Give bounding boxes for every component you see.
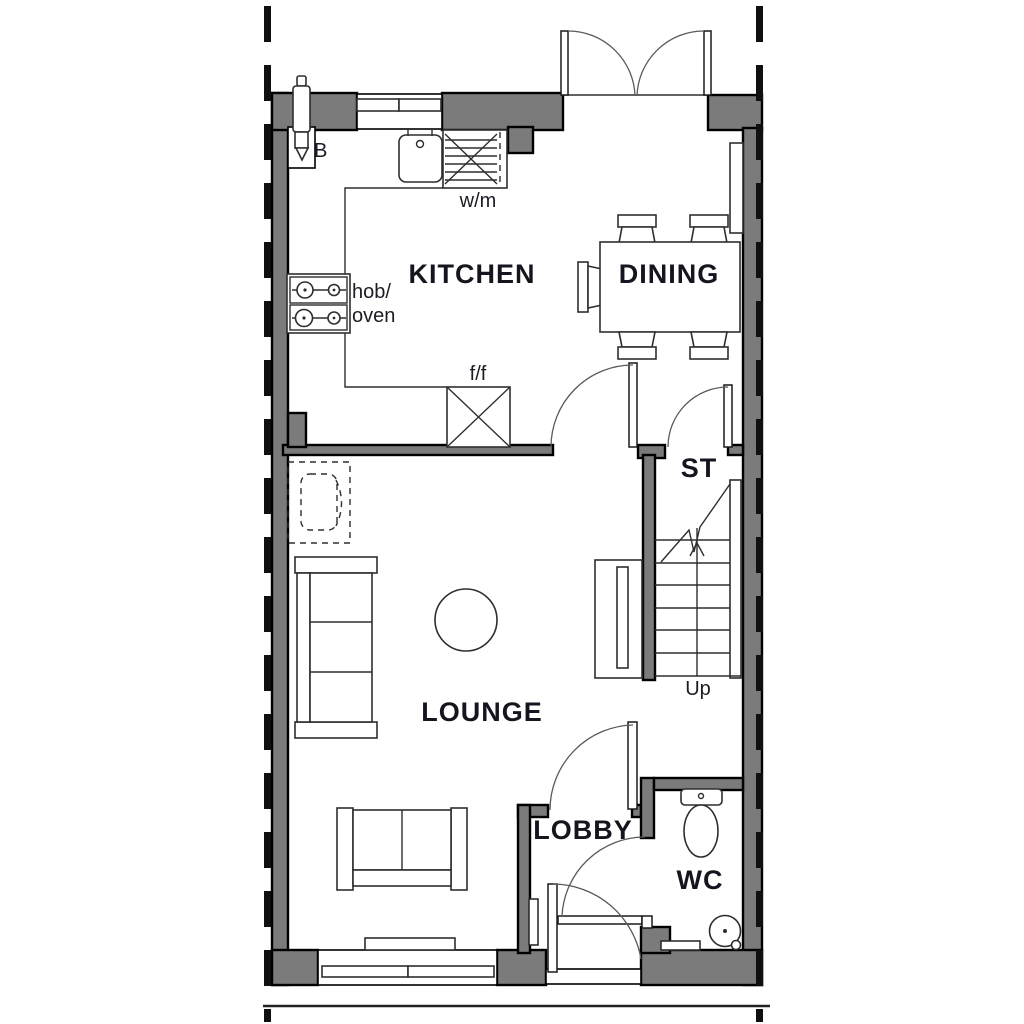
room-label-dining: DINING <box>619 259 720 289</box>
sofa-small <box>337 808 467 890</box>
basin <box>661 916 741 951</box>
wall-stairs-west <box>643 455 655 680</box>
hob-oven <box>287 274 350 333</box>
label-boiler: B <box>314 140 327 162</box>
label-washing-machine: w/m <box>459 190 497 212</box>
kitchen-window <box>357 94 442 129</box>
label-fridge-freezer: f/f <box>470 363 487 385</box>
radiator-lounge <box>365 938 455 950</box>
toilet <box>681 789 722 857</box>
dining-set <box>578 143 743 359</box>
stairs-stringer <box>730 480 741 678</box>
kitchen-door <box>551 363 637 447</box>
room-label-store: ST <box>681 453 718 483</box>
sink <box>399 130 442 182</box>
wall-top-a <box>272 93 357 130</box>
wall-bottom-c <box>641 950 762 985</box>
wc-shelf <box>661 941 700 950</box>
wall-left <box>272 93 288 985</box>
lounge-window <box>318 938 497 985</box>
lobby-door <box>550 722 637 810</box>
armchair-dashed <box>288 462 350 543</box>
coffee-table <box>435 589 497 651</box>
wc-door <box>558 837 652 928</box>
wall-west-pier <box>288 413 306 447</box>
french-door-left-leaf <box>561 31 568 95</box>
wall-pier-wm <box>508 127 533 153</box>
store-door <box>668 385 732 447</box>
floor-plan-drawing: KITCHEN DINING ST LOUNGE LOBBY WC B w/m … <box>0 0 1024 1024</box>
sofa-large <box>295 557 377 738</box>
wall-bottom-b <box>497 950 546 985</box>
stairs <box>655 480 741 678</box>
media-unit <box>595 560 642 678</box>
room-label-lobby: LOBBY <box>533 815 633 845</box>
label-hob-line2: oven <box>352 305 395 327</box>
french-door-right-leaf <box>704 31 711 95</box>
room-label-lounge: LOUNGE <box>421 697 543 727</box>
floor-plan-page: KITCHEN DINING ST LOUNGE LOBBY WC B w/m … <box>0 0 1024 1024</box>
front-door <box>546 884 641 984</box>
french-doors <box>561 31 711 96</box>
room-label-wc: WC <box>677 865 724 895</box>
radiator-dining <box>730 143 743 233</box>
wall-bottom-a <box>272 950 318 985</box>
wall-kitchen-lounge <box>283 445 553 455</box>
fridge-freezer <box>447 387 510 447</box>
room-label-kitchen: KITCHEN <box>409 259 536 289</box>
wall-wc-west-upper <box>641 778 654 838</box>
label-stairs-up: Up <box>685 678 711 700</box>
wall-top-b <box>442 93 563 130</box>
label-hob-line1: hob/ <box>352 281 391 303</box>
radiator-lobby <box>529 899 538 945</box>
wall-top-right-corner <box>708 95 762 130</box>
washing-machine <box>443 130 507 188</box>
